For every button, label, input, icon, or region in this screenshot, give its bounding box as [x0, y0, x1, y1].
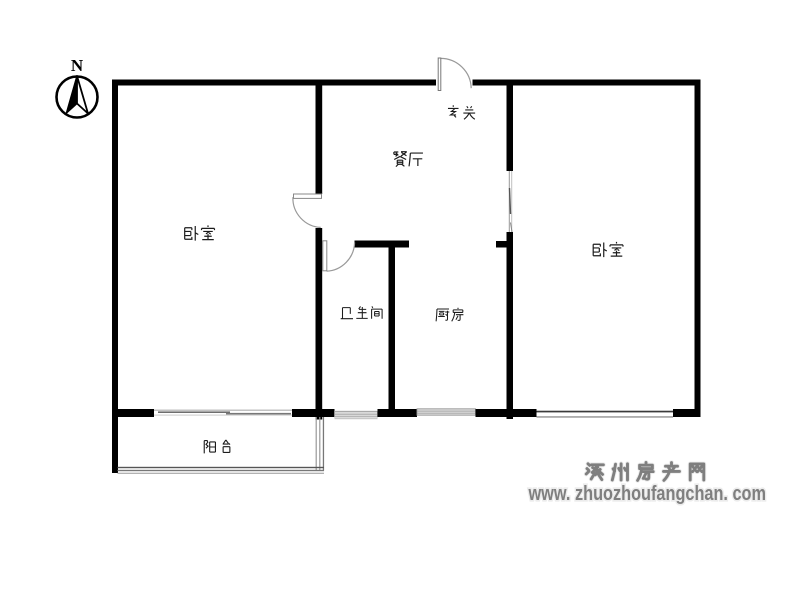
- svg-text:N: N: [71, 56, 84, 75]
- svg-text:www. zhuozhoufangchan. com: www. zhuozhoufangchan. com: [528, 483, 766, 505]
